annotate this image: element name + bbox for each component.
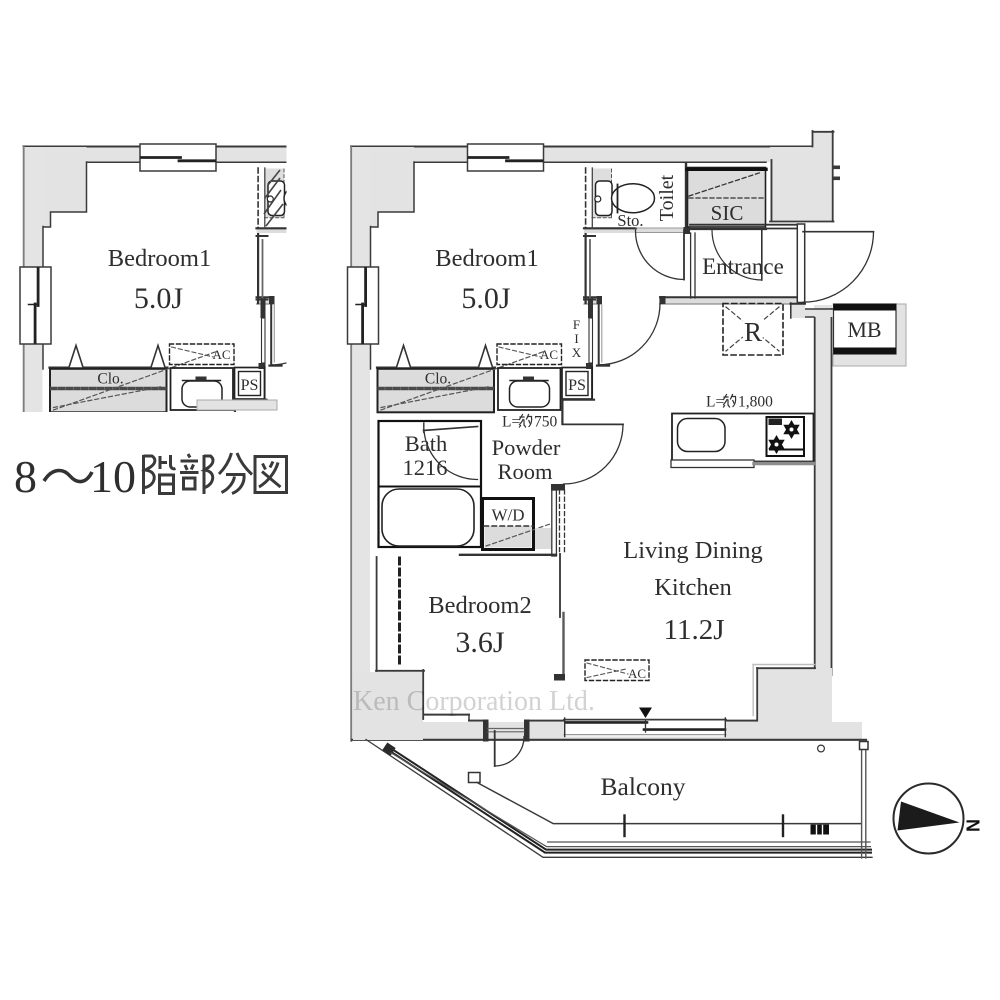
svg-text:Clo.: Clo. — [425, 371, 451, 388]
svg-text:8: 8 — [14, 451, 37, 502]
svg-text:W/D: W/D — [491, 506, 524, 525]
svg-text:Sto.: Sto. — [617, 211, 643, 230]
svg-text:L=: L= — [706, 394, 724, 411]
svg-text:L=: L= — [502, 414, 520, 431]
svg-text:SIC: SIC — [711, 201, 744, 225]
svg-text:3.6J: 3.6J — [455, 626, 505, 659]
svg-text:AC: AC — [628, 666, 646, 681]
svg-text:1,800: 1,800 — [738, 394, 773, 411]
svg-text:10: 10 — [90, 451, 136, 502]
svg-text:Balcony: Balcony — [601, 772, 686, 801]
svg-text:MB: MB — [847, 317, 881, 342]
svg-text:11.2J: 11.2J — [664, 614, 725, 646]
svg-text:Kitchen: Kitchen — [654, 574, 732, 601]
svg-text:Living Dining: Living Dining — [623, 537, 763, 564]
svg-text:X: X — [572, 345, 582, 360]
svg-text:1216: 1216 — [403, 455, 448, 480]
svg-text:F: F — [573, 317, 580, 332]
svg-text:Powder: Powder — [492, 435, 561, 460]
svg-text:5.0J: 5.0J — [461, 282, 511, 315]
svg-text:Room: Room — [497, 459, 553, 484]
svg-text:R: R — [744, 317, 762, 347]
svg-text:Entrance: Entrance — [702, 254, 784, 279]
svg-text:I: I — [574, 331, 578, 346]
svg-text:PS: PS — [568, 377, 586, 394]
svg-text:750: 750 — [534, 414, 558, 431]
svg-text:Bedroom1: Bedroom1 — [435, 245, 538, 272]
svg-text:AC: AC — [540, 347, 558, 362]
svg-text:Bedroom2: Bedroom2 — [428, 592, 531, 619]
svg-text:Toilet: Toilet — [656, 174, 678, 221]
svg-text:N: N — [963, 819, 983, 832]
svg-text:Ken Corporation Ltd.: Ken Corporation Ltd. — [353, 686, 595, 717]
